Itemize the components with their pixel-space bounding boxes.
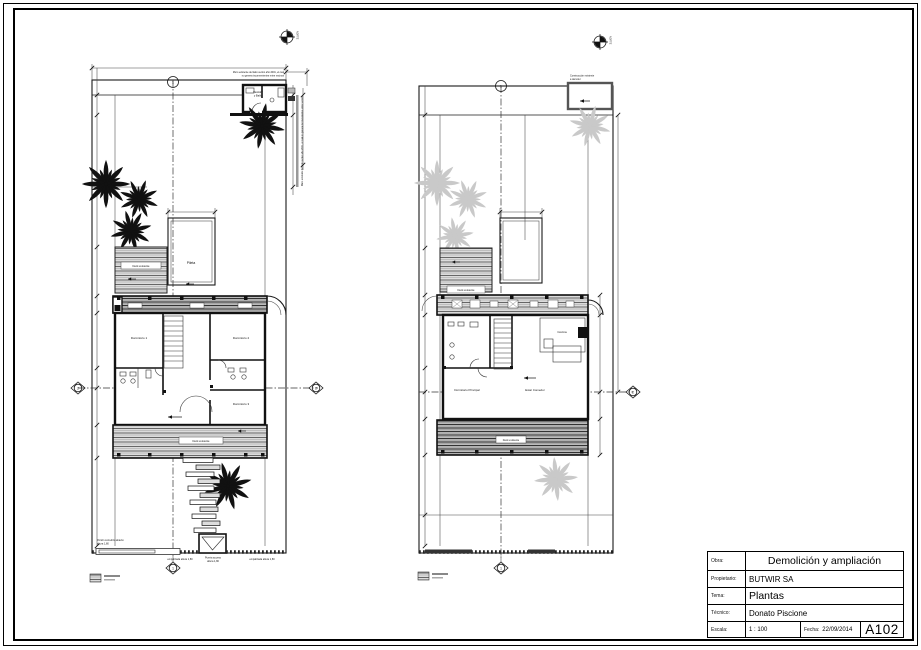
room-label-estar: Estar Comedor	[525, 388, 544, 392]
title-block-row-tema: Tema: Plantas	[708, 588, 903, 605]
fecha-value: 22/09/2014	[822, 627, 852, 633]
lower-deck: Deck existente	[113, 425, 267, 458]
deck-label: Deck existente	[503, 439, 520, 442]
grid-bubble: 1	[172, 80, 174, 84]
stepping-stones	[183, 458, 220, 533]
legend-swatch-left	[90, 574, 120, 582]
upper-deck-right: Deck existente	[440, 248, 492, 293]
propietario-value: BUTWIR SA	[746, 571, 903, 587]
deck-label: Deck existente	[132, 264, 150, 268]
north-label: NORTE	[609, 36, 612, 45]
demolish-note-2: a demoler	[570, 78, 581, 81]
north-compass-icon: NORTE	[592, 34, 612, 50]
tecnico-value: Donato Piscione	[746, 605, 903, 621]
room-label-dorm1: Dormitorio 1	[131, 336, 148, 340]
room-label-vestidor: Vestidor	[253, 90, 263, 94]
lower-deck-right: Deck existente	[437, 420, 588, 455]
room-label-dorm2: Dormitorio 2	[233, 336, 250, 340]
fence: Portón corredizo abierto altura 1,80 emp…	[92, 539, 286, 563]
plan-right: NORTE 1 2 1	[414, 34, 640, 580]
escala-value: 1 : 100	[746, 622, 801, 637]
title-block: Obra: Demolición y ampliación Propietari…	[707, 551, 904, 638]
room-label-cocina: Cocina	[557, 330, 567, 334]
propietario-label: Propietario:	[708, 571, 746, 587]
title-block-row-propietario: Propietario: BUTWIR SA	[708, 571, 903, 588]
fence-label-left: empalizada altura 1,80	[167, 558, 193, 561]
palm-tree-icon	[82, 160, 130, 208]
grid-bubble: 2	[77, 386, 79, 390]
room-label-dorm3: Dormitorio 3	[233, 402, 250, 406]
palm-tree-icon	[441, 172, 494, 225]
left-top-note-2: no genera inconvenientes entre vecinos	[242, 75, 285, 78]
fecha-label: Fecha:	[804, 627, 819, 633]
pool-label: Pileta	[187, 261, 196, 265]
plan-left: Muro existente del lado vecino año 2001,…	[71, 29, 323, 582]
fecha-cell: Fecha: 22/09/2014	[801, 622, 861, 637]
legend-swatch-right	[418, 572, 448, 580]
obra-value: Demolición y ampliación	[746, 552, 903, 570]
room-label-dorm-principal: Dormitorio Principal	[454, 388, 480, 392]
grid-bubble: 2	[315, 386, 317, 390]
grid-bubble: 1	[500, 84, 502, 88]
obra-label: Obra:	[708, 552, 746, 570]
palm-tree-icon	[525, 448, 587, 510]
sheet-number: A102	[861, 622, 903, 637]
upper-deck: Deck existente	[115, 247, 167, 293]
deck-band-right	[422, 295, 603, 315]
grid-bubble: 1	[500, 566, 502, 570]
drawing-sheet: Muro existente del lado vecino año 2001,…	[0, 0, 921, 650]
grid-bubble: 1	[172, 566, 174, 570]
demolish-box: Construcción existente a demoler	[568, 75, 612, 110]
north-compass-icon: NORTE	[279, 29, 299, 45]
fence-right-plan	[419, 550, 613, 554]
north-label: NORTE	[296, 31, 299, 40]
title-block-row-obra: Obra: Demolición y ampliación	[708, 552, 903, 571]
gate-note-2: altura 1,80	[97, 543, 109, 546]
title-block-row-tecnico: Técnico: Donato Piscione	[708, 605, 903, 622]
left-side-note: Muro existente del lado vecino año 2001,…	[301, 95, 304, 186]
room-label-vestidor-2: y Baño	[254, 94, 263, 98]
tema-label: Tema:	[708, 588, 746, 604]
entry-label-2: altura 1,80	[207, 560, 219, 563]
tecnico-label: Técnico:	[708, 605, 746, 621]
palm-tree-icon	[414, 160, 460, 206]
entry-gate	[199, 534, 226, 553]
fence-label-right: empalizada altura 1,80	[249, 558, 275, 561]
deck-label: Deck existente	[457, 288, 475, 292]
grid-bubble: 2	[632, 390, 634, 394]
house-right: Cocina Dormitorio Principal Estar Comedo…	[443, 315, 588, 419]
pool: Pileta	[168, 218, 215, 286]
deck-label: Deck existente	[192, 439, 210, 443]
title-block-row-meta: Escala: 1 : 100 Fecha: 22/09/2014 A102	[708, 622, 903, 637]
side-wall-note: Muro existente del lado vecino año 2001,…	[296, 95, 304, 187]
house-left: Dormitorio 1 Dormitorio 2 Dormitorio 3	[115, 313, 265, 425]
escala-label: Escala:	[708, 622, 746, 637]
tema-value: Plantas	[746, 588, 903, 604]
pool-right	[500, 218, 542, 283]
